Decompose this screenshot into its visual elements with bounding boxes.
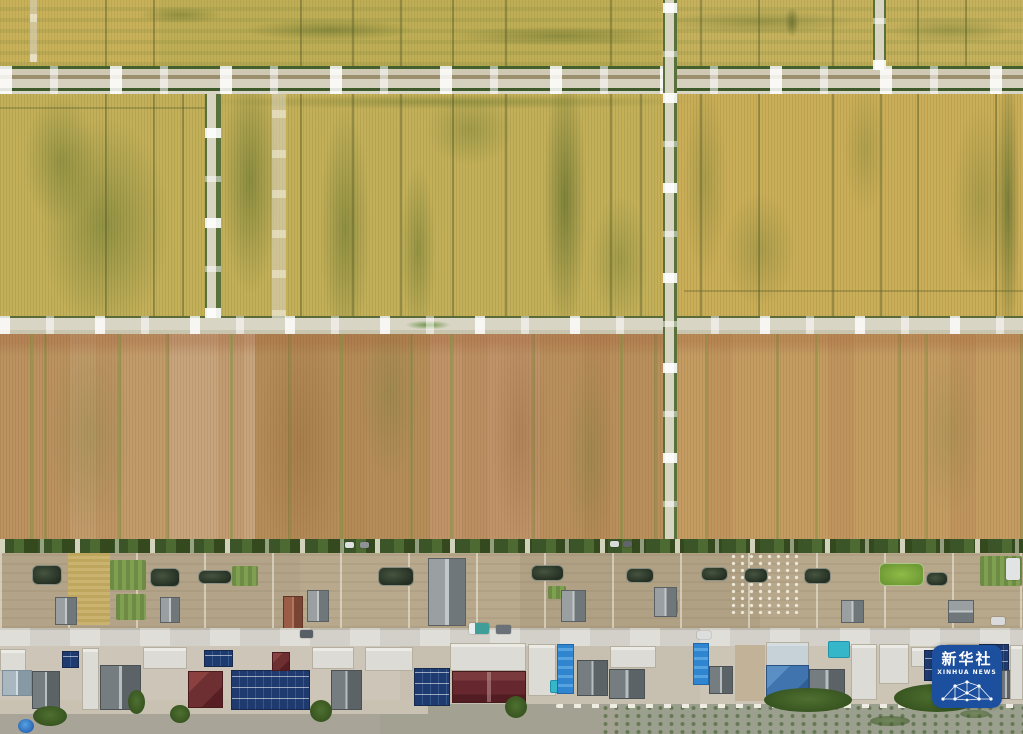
house-flat-roof	[312, 647, 354, 669]
field-road-vertical-main	[663, 0, 677, 553]
field-band-lower	[0, 334, 1023, 539]
parked-car	[360, 542, 369, 548]
pond	[701, 567, 728, 581]
shed-roof	[561, 590, 586, 622]
field-divider	[400, 0, 402, 316]
field-road-horizontal-1	[0, 66, 1023, 94]
grain-drying-plot	[729, 553, 799, 614]
house-gable-roof	[2, 670, 32, 696]
green-seam	[815, 334, 818, 539]
field-divider	[700, 0, 702, 316]
house-gable-roof	[609, 669, 645, 699]
field-divider	[965, 0, 967, 66]
green-seam	[705, 334, 708, 539]
pond	[744, 568, 768, 583]
house-flat-roof	[82, 648, 99, 710]
shed-roof	[307, 590, 329, 622]
field-divider	[105, 0, 107, 316]
house-flat-roof	[766, 642, 809, 666]
green-seam	[230, 334, 233, 539]
vegetable-garden	[232, 566, 258, 586]
field-path	[272, 94, 286, 318]
blue-umbrella	[18, 719, 34, 733]
green-seam	[925, 334, 928, 539]
riverbank-trees	[310, 700, 332, 722]
field-path	[30, 0, 37, 62]
parked-car	[610, 541, 619, 547]
house-red-roof	[272, 652, 290, 671]
shed-roof	[654, 587, 677, 617]
xinhua-watermark: 新华社 XINHUA NEWS	[932, 645, 1002, 708]
parked-car	[623, 541, 632, 547]
swimming-pool	[828, 641, 850, 658]
parked-car	[300, 630, 313, 638]
field-divider	[684, 290, 1023, 292]
pond	[198, 570, 232, 584]
tree-hedge-strip	[0, 539, 1023, 553]
solar-panel-roof	[62, 651, 79, 668]
bare-plot	[735, 645, 765, 701]
field-divider	[452, 0, 454, 316]
field-divider	[182, 94, 184, 316]
riverbank-trees	[170, 705, 190, 723]
house-gable-roof	[709, 666, 733, 694]
blue-metal-roof	[693, 643, 709, 685]
duckweed-pond	[879, 563, 924, 586]
field-divider	[352, 0, 354, 316]
parked-car	[697, 631, 711, 639]
shed-roof	[948, 600, 974, 623]
green-seam	[118, 334, 121, 539]
riverbank-trees	[764, 688, 852, 712]
solar-panel-roof	[204, 650, 233, 667]
blue-metal-roof	[557, 644, 574, 694]
pond	[626, 568, 654, 583]
house-flat-roof	[879, 644, 909, 684]
house-gable-roof	[331, 670, 362, 710]
house-flat-roof	[0, 649, 26, 671]
red-shed-roof	[283, 596, 303, 630]
field-divider	[505, 0, 507, 316]
house-red-roof	[188, 671, 223, 708]
xinhua-network-icon	[940, 678, 994, 702]
watermark-subtitle: XINHUA NEWS	[937, 670, 996, 676]
green-seam	[450, 334, 453, 539]
pond	[32, 565, 62, 585]
vegetable-garden	[110, 560, 146, 590]
shed-roof	[841, 600, 864, 623]
house-flat-roof	[450, 643, 526, 671]
pond	[926, 572, 948, 586]
pond	[804, 568, 831, 584]
pond	[150, 568, 180, 587]
shed-roof	[55, 597, 77, 625]
field-divider	[758, 0, 760, 316]
house-flat-roof	[851, 644, 877, 700]
house-flat-roof	[365, 647, 413, 671]
field-divider	[300, 0, 302, 316]
field-divider	[0, 107, 205, 109]
field-divider	[640, 94, 642, 316]
riverbank-trees	[505, 696, 527, 718]
green-seam	[30, 334, 33, 539]
house-gable-roof	[577, 660, 608, 696]
parked-car	[991, 617, 1005, 625]
field-road-vertical-topright	[873, 0, 886, 70]
vegetable-garden	[116, 594, 146, 620]
parked-car	[345, 542, 354, 548]
house-flat-roof	[143, 647, 187, 669]
long-shed-roof	[428, 558, 466, 626]
white-van	[1006, 558, 1020, 580]
pond	[378, 567, 414, 586]
parked-car	[496, 625, 511, 634]
solar-panel-roof	[231, 670, 310, 710]
field-divider	[832, 0, 834, 316]
field-road-horizontal-2	[0, 316, 1023, 334]
solar-panel-roof	[414, 668, 450, 706]
shed-roof	[160, 597, 180, 623]
field-road-vertical-left	[205, 94, 221, 318]
field-divider	[880, 94, 882, 316]
riverbank-trees	[33, 706, 67, 726]
village-backyards	[0, 553, 1023, 628]
green-seam	[340, 334, 343, 539]
field-divider	[917, 0, 919, 316]
house-flat-roof	[610, 646, 656, 668]
green-seam	[620, 334, 623, 539]
field-divider	[610, 0, 612, 316]
house-flat-roof	[1010, 645, 1023, 700]
field-divider	[153, 0, 155, 316]
watermark-title: 新华社	[941, 652, 992, 667]
pond	[531, 565, 564, 581]
riverbank-trees	[128, 690, 145, 714]
field-divider	[995, 94, 997, 316]
aerial-photo: 新华社 XINHUA NEWS	[0, 0, 1023, 734]
house-gable-roof	[32, 671, 60, 709]
floating-vegetation	[870, 716, 910, 726]
truck	[469, 623, 489, 634]
floating-vegetation	[960, 710, 990, 718]
